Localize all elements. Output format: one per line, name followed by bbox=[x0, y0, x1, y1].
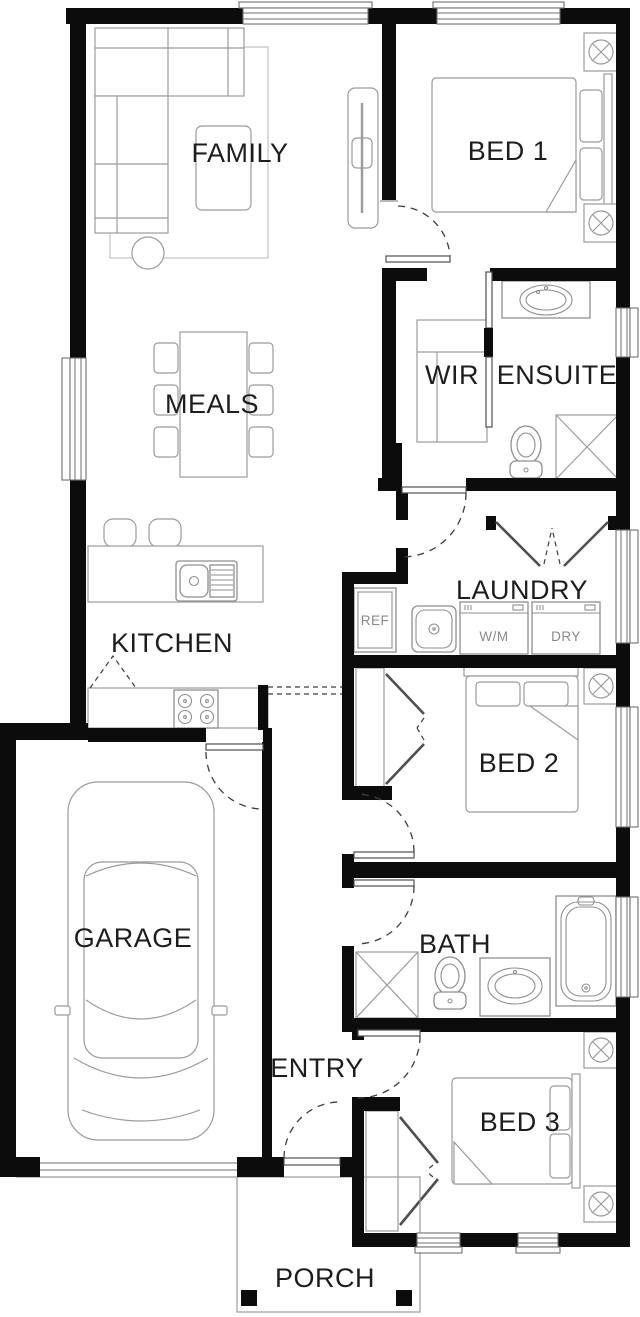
room-label-bath: BATH bbox=[419, 929, 491, 959]
bed2-robe bbox=[356, 668, 424, 790]
window bbox=[616, 308, 638, 357]
bath-vanity bbox=[480, 958, 550, 1016]
room-label-ensuite: ENSUITE bbox=[497, 360, 618, 390]
bed3-door bbox=[358, 1030, 420, 1098]
bedside-lamp-icon bbox=[584, 1186, 618, 1222]
floor-plan-page: FAMILY BED 1 WIR ENSUITE MEALS LAUNDRY K… bbox=[0, 0, 640, 1317]
stool bbox=[149, 519, 181, 547]
room-label-porch: PORCH bbox=[275, 1263, 375, 1293]
laundry-external-doors bbox=[496, 522, 608, 566]
side-table bbox=[132, 237, 164, 269]
window bbox=[239, 2, 372, 24]
car-mirror bbox=[55, 1006, 70, 1015]
bed2-furniture bbox=[356, 666, 618, 812]
cooktop-icon bbox=[174, 690, 218, 728]
bed2-door bbox=[354, 794, 414, 858]
car-mirror bbox=[212, 1006, 227, 1015]
room-label-family: FAMILY bbox=[191, 138, 288, 168]
window bbox=[616, 530, 638, 643]
room-label-entry: ENTRY bbox=[270, 1053, 364, 1083]
front-door bbox=[284, 1102, 340, 1165]
tv-unit bbox=[348, 88, 378, 228]
kitchen-fixtures bbox=[88, 519, 268, 728]
bathtub-icon bbox=[556, 896, 616, 1006]
laundry-tub-icon bbox=[412, 606, 456, 652]
ensuite-vanity bbox=[502, 281, 590, 318]
dining-chair bbox=[154, 343, 178, 373]
dining-chair bbox=[249, 427, 273, 457]
pantry-door-swing bbox=[90, 656, 136, 688]
appliance-label-wm: W/M bbox=[479, 629, 508, 644]
car bbox=[55, 782, 227, 1140]
bath-toilet-icon bbox=[434, 957, 466, 1009]
appliance-label-dry: DRY bbox=[551, 629, 581, 644]
room-label-wir: WIR bbox=[425, 360, 479, 390]
window bbox=[62, 358, 86, 480]
porch-post bbox=[396, 1290, 412, 1306]
hall-bulkhead bbox=[268, 687, 342, 694]
room-label-bed2: BED 2 bbox=[479, 748, 560, 778]
floor-plan: FAMILY BED 1 WIR ENSUITE MEALS LAUNDRY K… bbox=[0, 0, 640, 1317]
room-label-bed3: BED 3 bbox=[480, 1107, 561, 1137]
bath-shower-icon bbox=[356, 952, 418, 1018]
garage-door bbox=[40, 1163, 237, 1170]
dining-chair bbox=[249, 343, 273, 373]
pillow bbox=[476, 682, 520, 706]
kitchen-sink-icon bbox=[176, 561, 237, 601]
garage-internal-door bbox=[206, 744, 263, 809]
appliance-label-ref: REF bbox=[361, 613, 390, 628]
dining-chair bbox=[154, 427, 178, 457]
pillow bbox=[524, 682, 568, 706]
stool bbox=[104, 519, 136, 547]
room-label-laundry: LAUNDRY bbox=[456, 575, 588, 605]
room-label-bed1: BED 1 bbox=[468, 136, 549, 166]
bed1-door bbox=[386, 206, 450, 262]
dryer-icon bbox=[532, 602, 600, 654]
window bbox=[616, 897, 638, 997]
pillow bbox=[580, 90, 602, 142]
room-label-meals: MEALS bbox=[165, 389, 259, 419]
window bbox=[516, 1233, 560, 1253]
window bbox=[616, 707, 638, 827]
bed3-headboard bbox=[572, 1074, 580, 1188]
pillow bbox=[580, 148, 602, 200]
laundry-door bbox=[402, 487, 466, 557]
bedside-lamp-icon bbox=[584, 33, 618, 71]
washing-machine-icon bbox=[460, 602, 528, 654]
entry-closet bbox=[366, 1111, 438, 1231]
pillow bbox=[550, 1134, 570, 1178]
bedside-lamp-icon bbox=[584, 668, 618, 704]
bath-door bbox=[354, 880, 414, 944]
window bbox=[433, 2, 564, 24]
room-label-kitchen: KITCHEN bbox=[111, 628, 233, 658]
bed1-headboard bbox=[604, 74, 612, 218]
porch-post bbox=[241, 1290, 257, 1306]
bedside-lamp-icon bbox=[584, 1032, 618, 1068]
bedside-lamp-icon bbox=[584, 204, 618, 242]
ensuite-toilet-icon bbox=[510, 426, 542, 478]
room-label-garage: GARAGE bbox=[74, 923, 193, 953]
window bbox=[415, 1233, 462, 1253]
ensuite-shower-icon bbox=[556, 415, 618, 479]
